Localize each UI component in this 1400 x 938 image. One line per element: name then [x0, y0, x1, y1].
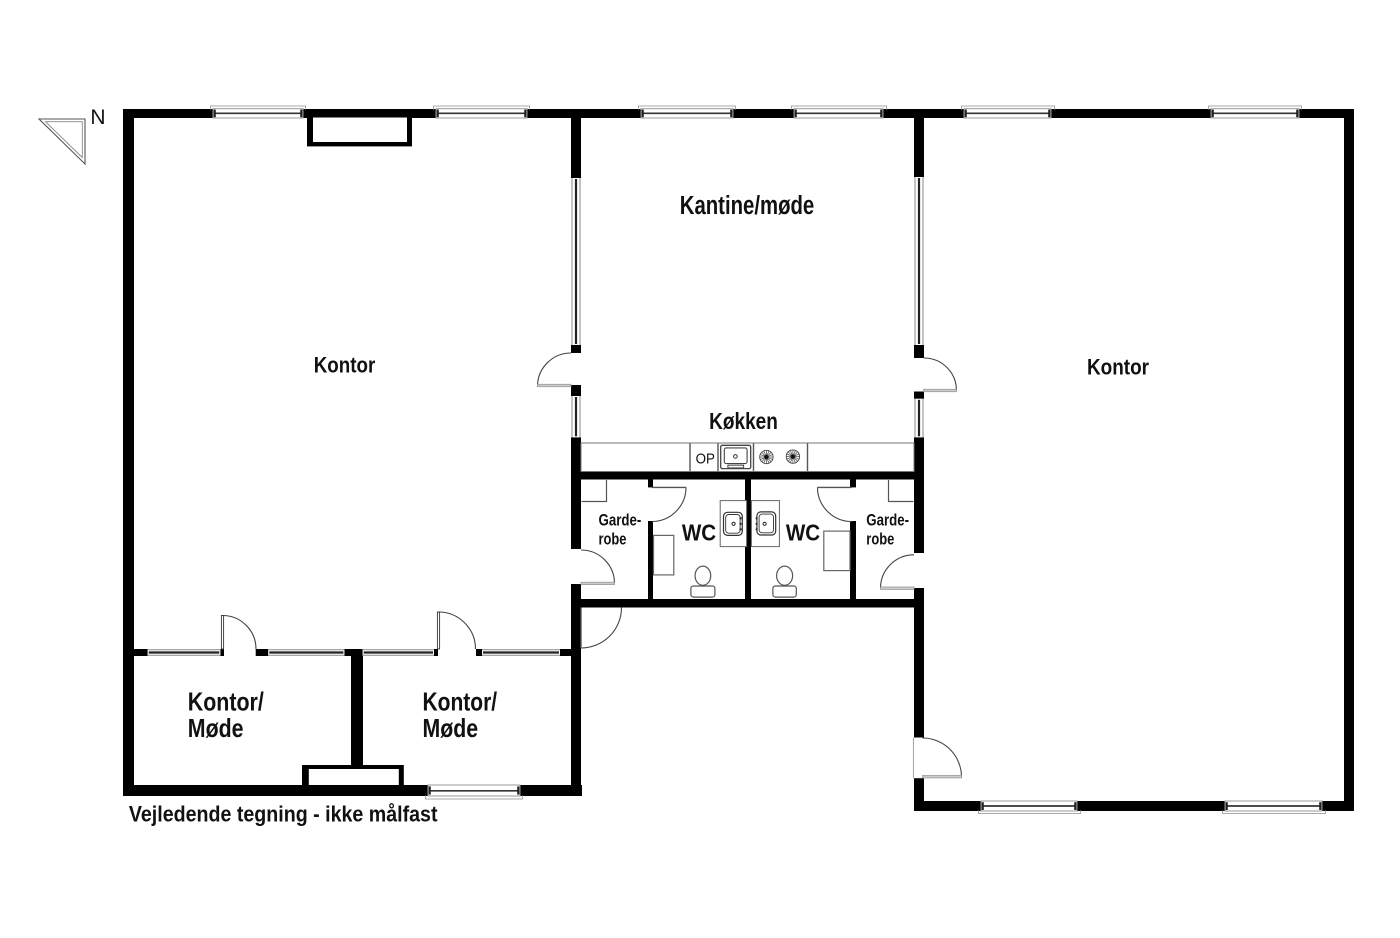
svg-text:OP: OP [696, 451, 715, 468]
svg-text:Vejledende tegning - ikke målf: Vejledende tegning - ikke målfast [129, 801, 438, 826]
svg-text:N: N [90, 106, 105, 129]
svg-text:Garde-: Garde- [599, 511, 642, 529]
svg-text:Køkken: Køkken [709, 408, 778, 434]
svg-text:WC: WC [682, 520, 716, 546]
svg-text:Garde-: Garde- [866, 511, 909, 529]
svg-text:robe: robe [599, 530, 627, 548]
svg-text:WC: WC [786, 520, 820, 546]
svg-text:Møde: Møde [423, 713, 479, 743]
svg-text:Kontor/: Kontor/ [188, 687, 264, 717]
svg-text:Møde: Møde [188, 713, 244, 743]
svg-text:robe: robe [866, 530, 894, 548]
svg-text:Kontor/: Kontor/ [423, 687, 498, 717]
svg-text:Kontor: Kontor [1087, 355, 1149, 380]
svg-text:Kontor: Kontor [314, 353, 376, 378]
svg-text:Kantine/møde: Kantine/møde [680, 192, 815, 220]
